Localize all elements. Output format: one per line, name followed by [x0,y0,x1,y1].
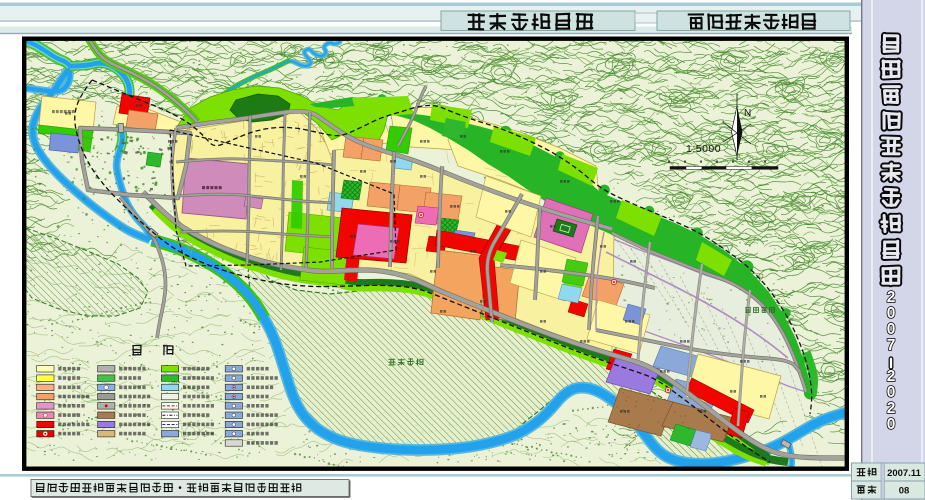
svg-text:2: 2 [887,400,896,417]
svg-text:0: 0 [887,321,896,338]
svg-text:0: 0 [887,305,896,322]
svg-text:2: 2 [887,368,896,385]
svg-text:0: 0 [887,416,896,433]
svg-text:08: 08 [899,486,910,497]
svg-text:7: 7 [887,337,896,354]
svg-text:2007.11: 2007.11 [887,468,922,479]
svg-text:1:5000: 1:5000 [686,143,721,155]
svg-text:0: 0 [887,384,896,401]
svg-text:2: 2 [887,289,896,306]
svg-text:N: N [744,108,751,119]
